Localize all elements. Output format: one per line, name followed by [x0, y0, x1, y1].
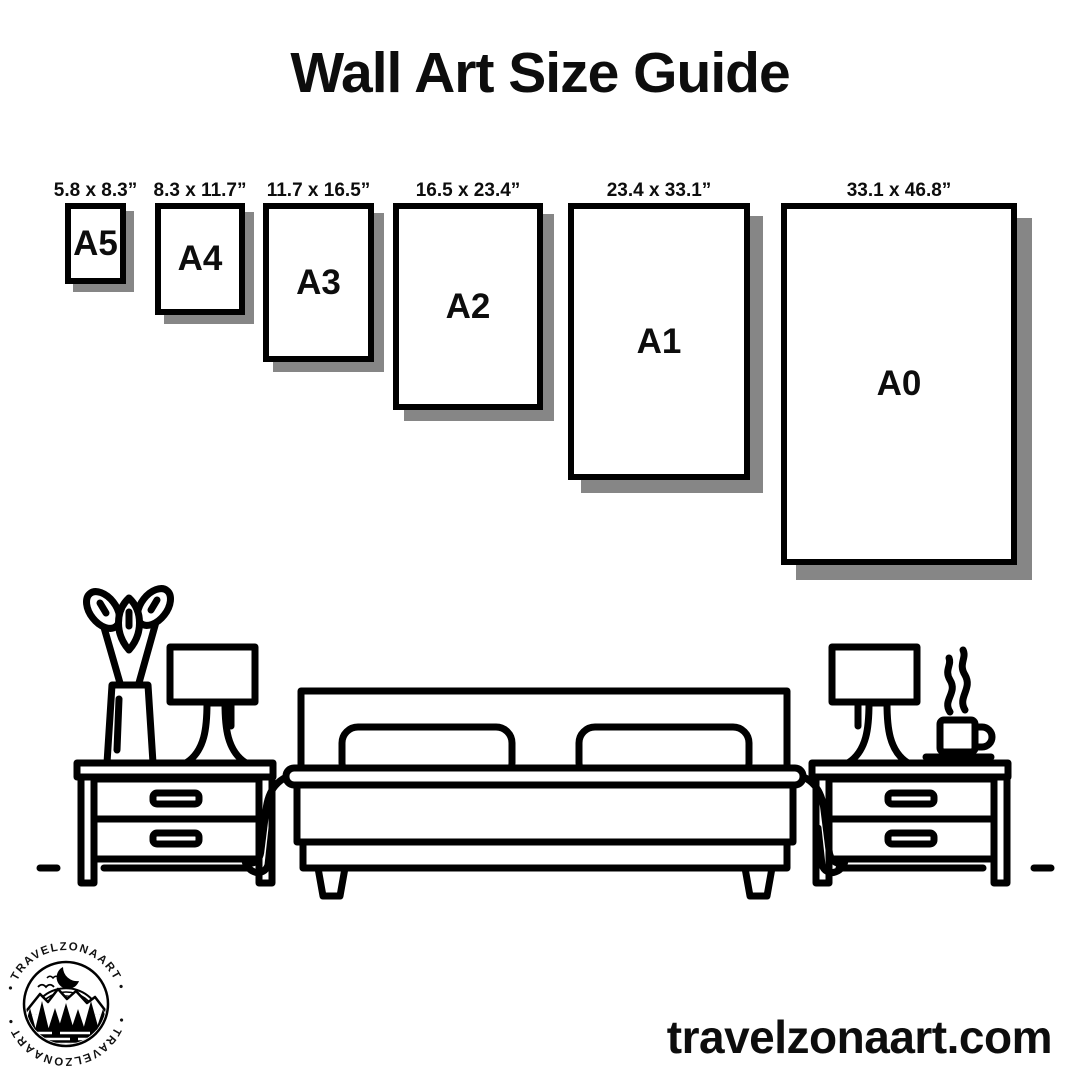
brand-logo: • TRAVELZONAART • • TRAVELZONAART •: [0, 935, 140, 1075]
coffee-cup: [926, 650, 992, 757]
table-lamp-left: [170, 647, 255, 763]
bed: [245, 691, 845, 896]
paper-a0: 33.1 x 46.8” A0: [781, 203, 1017, 565]
paper-a3: 11.7 x 16.5” A3: [263, 203, 374, 362]
plant-vase: [80, 582, 177, 763]
steam-line: [948, 658, 953, 712]
paper-a1: 23.4 x 33.1” A1: [568, 203, 750, 480]
paper-a0-code: A0: [877, 364, 922, 404]
bed-foot: [745, 868, 772, 896]
bed-foot: [318, 868, 345, 896]
paper-a2: 16.5 x 23.4” A2: [393, 203, 543, 410]
table-lamp-right: [832, 647, 917, 763]
bed-frame: [297, 785, 793, 842]
website-url: travelzonaart.com: [667, 1010, 1052, 1064]
paper-a1-code: A1: [637, 322, 682, 362]
paper-a0-dimensions: 33.1 x 46.8”: [847, 180, 952, 209]
paper-a2-dimensions: 16.5 x 23.4”: [416, 180, 521, 209]
page-title: Wall Art Size Guide: [0, 40, 1080, 106]
steam-line: [962, 650, 967, 710]
paper-a4-code: A4: [178, 239, 223, 279]
paper-a5-code: A5: [73, 224, 118, 264]
paper-a1-dimensions: 23.4 x 33.1”: [607, 180, 712, 209]
wall-art-size-guide-infographic: Wall Art Size Guide 5.8 x 8.3” A5 8.3 x …: [0, 0, 1080, 1080]
paper-a4-dimensions: 8.3 x 11.7”: [154, 180, 247, 209]
paper-a5: 5.8 x 8.3” A5: [65, 203, 126, 284]
paper-a3-dimensions: 11.7 x 16.5”: [267, 180, 371, 209]
paper-a3-code: A3: [296, 263, 341, 303]
paper-a4: 8.3 x 11.7” A4: [155, 203, 245, 315]
bedroom-illustration: [0, 560, 1080, 910]
paper-a2-code: A2: [446, 287, 491, 327]
bed-base: [303, 842, 787, 868]
paper-a5-dimensions: 5.8 x 8.3”: [54, 180, 137, 209]
